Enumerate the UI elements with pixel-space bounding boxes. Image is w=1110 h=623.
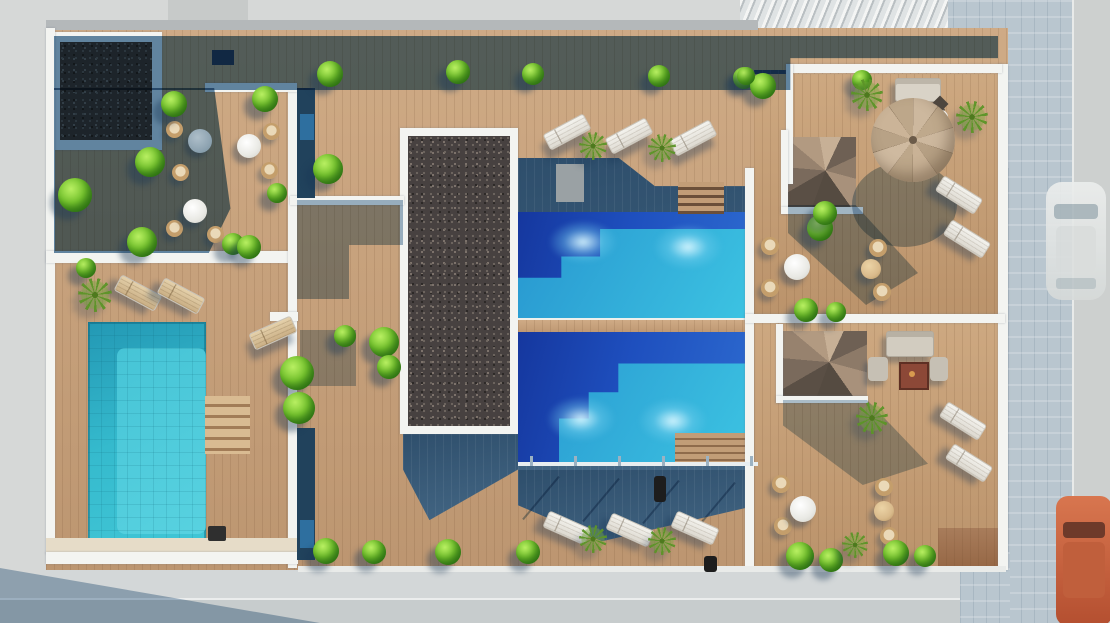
lounger [668,119,717,156]
bush [280,356,314,390]
table-white [237,134,261,158]
chair [263,123,280,140]
bush [813,201,837,225]
bush [377,355,401,379]
table-white [784,254,810,280]
bush [369,327,399,357]
aerial-render-rooftop-pools [0,0,1110,623]
bush [648,65,670,87]
bush [883,540,909,566]
bush [237,235,261,259]
bush [317,61,343,87]
bush [826,302,846,322]
objects-layer [0,0,1110,623]
bush [127,227,157,257]
table-white [790,496,816,522]
lounger [935,175,984,215]
lounger-tan [248,315,297,350]
table-tan [874,501,894,521]
lounger [945,443,994,483]
chair [261,162,278,179]
bush [914,545,936,567]
chair [166,121,183,138]
bush [252,86,278,112]
bush [516,540,540,564]
bush [786,542,814,570]
table-white [183,199,207,223]
palm [648,527,676,555]
palm [579,132,607,160]
lounger [604,117,653,154]
bush [794,298,818,322]
bush [435,539,461,565]
chair [772,475,790,493]
bush [819,548,843,572]
table-shaded [188,129,212,153]
palm [579,525,607,553]
lounger [670,510,719,545]
bush [334,325,356,347]
palm [648,134,676,162]
lounger [939,401,988,441]
bush [58,178,92,212]
bush [283,392,315,424]
bush [313,154,343,184]
table-tan [861,259,881,279]
palm [856,402,888,434]
bush [135,147,165,177]
lounger-tan [156,277,205,314]
chair [166,220,183,237]
chair [207,226,224,243]
chair [873,283,891,301]
bush [522,63,544,85]
chair [761,237,779,255]
bush [76,258,96,278]
bush [446,60,470,84]
chair [172,164,189,181]
bush [267,183,287,203]
chair [761,279,779,297]
parasol [871,98,955,182]
bush [737,67,755,85]
palm [851,79,883,111]
parasol-hub [909,136,917,144]
bush [313,538,339,564]
palm [956,101,988,133]
palm [842,532,868,558]
chair [774,517,792,535]
chair [875,478,893,496]
bush [161,91,187,117]
lounger [943,219,992,259]
palm [78,278,112,312]
lounger-tan [113,274,162,311]
chair [869,239,887,257]
bush [362,540,386,564]
